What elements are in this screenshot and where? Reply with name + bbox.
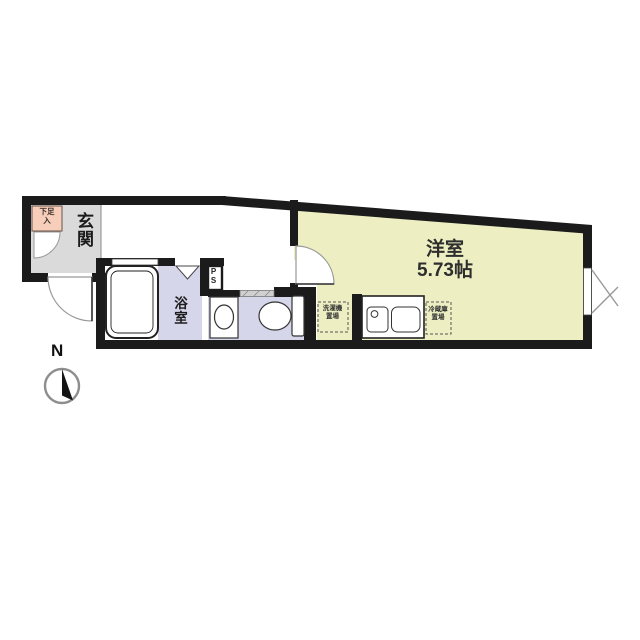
kitchen-wall-stub xyxy=(352,294,362,341)
compass-north-label: N xyxy=(51,341,63,361)
bathroom-door-gap xyxy=(175,258,200,266)
kitchen-sink-drain xyxy=(371,311,378,318)
sanitary-wall-left xyxy=(96,258,105,349)
western-room-label-group: 洋室 5.73帖 xyxy=(383,239,507,282)
compass xyxy=(45,369,79,403)
toilet-bowl xyxy=(259,302,291,330)
bathroom-label: 浴室 xyxy=(169,296,189,325)
outer-wall-bottom xyxy=(96,340,592,349)
pipe-space-label: PS xyxy=(209,267,218,285)
western-room-label: 洋室 xyxy=(383,239,507,260)
washer-place-label: 洗濯機 置場 xyxy=(316,305,349,321)
room-wall-left-upper xyxy=(290,200,298,246)
floorplan-page: 玄関 下足 入 浴室 PS 洋室 5.73帖 洗濯機 置場 冷蔵庫 置場 N xyxy=(0,0,640,640)
bathtub xyxy=(106,266,158,338)
kitchen-hob xyxy=(392,307,421,332)
toilet-tank xyxy=(292,296,304,336)
entrance-label: 玄関 xyxy=(71,212,96,248)
outer-wall-left xyxy=(22,196,31,282)
entrance-door-arc xyxy=(48,277,92,321)
fridge-place-label: 冷蔵庫 置場 xyxy=(424,306,452,322)
entrance-wall-bottom-left xyxy=(22,273,48,282)
shoe-storage-label: 下足 入 xyxy=(32,208,62,225)
kitchen-sink xyxy=(367,307,388,332)
toilet-wall-right xyxy=(304,287,316,349)
washbasin-bowl xyxy=(215,305,234,329)
bathtub-window xyxy=(112,259,158,265)
right-wall-window xyxy=(584,268,592,315)
western-room-size: 5.73帖 xyxy=(383,260,507,281)
outer-wall-top xyxy=(22,196,226,205)
